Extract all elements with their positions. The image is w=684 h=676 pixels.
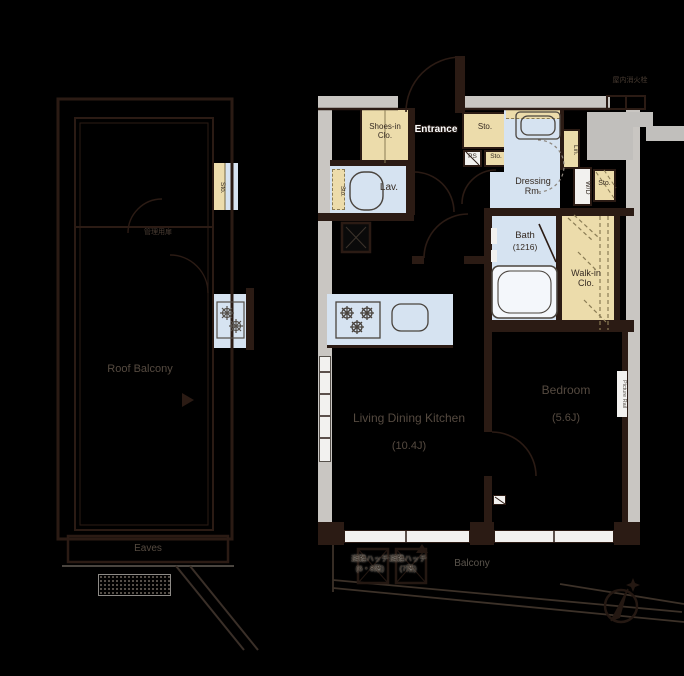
right-wall-inner bbox=[622, 332, 628, 528]
lav-label: Lav. bbox=[372, 182, 406, 194]
roof-balcony-label: Roof Balcony bbox=[100, 363, 180, 376]
wall-lav-right bbox=[406, 166, 412, 213]
hatch-triangle bbox=[416, 544, 428, 553]
left-door-arcs bbox=[128, 199, 208, 293]
dressing-label: Dressing Rm. bbox=[508, 176, 558, 197]
top-wall-right bbox=[462, 96, 610, 109]
balcony-label: Balcony bbox=[448, 558, 496, 570]
wd-label: W/D bbox=[574, 175, 591, 201]
hatch-a-name: 避難ハッチ bbox=[350, 555, 390, 564]
dressing-top-shelf bbox=[506, 110, 560, 119]
bottom-stub-right bbox=[614, 522, 640, 545]
lav-sto-label: Sto. bbox=[331, 177, 345, 205]
ldk-window bbox=[344, 530, 470, 543]
entrance-label: Entrance bbox=[408, 124, 464, 136]
ldk-label: Living Dining Kitchen bbox=[344, 412, 474, 426]
left-kitchen-wall bbox=[246, 288, 254, 350]
left-site-diagonals bbox=[176, 566, 258, 650]
room-dressing-ext bbox=[490, 172, 504, 208]
wall-lav-top bbox=[330, 160, 412, 166]
left-inner-door-arc bbox=[170, 255, 208, 293]
wall-main-vertical-lower bbox=[484, 476, 492, 545]
wall-hall-bottom-a bbox=[412, 256, 424, 264]
illegible-note-box bbox=[98, 574, 171, 596]
bedroom-label: Bedroom bbox=[516, 384, 616, 398]
sto-a-label: Sto. bbox=[462, 122, 508, 131]
shaft-block bbox=[587, 112, 633, 160]
corridor-step-b bbox=[646, 126, 684, 141]
ldk-size-label: (10.4J) bbox=[344, 440, 474, 453]
eaves-label: Eaves bbox=[108, 543, 188, 555]
service-door-arc bbox=[128, 199, 162, 233]
left-storage-blue bbox=[225, 163, 238, 210]
wall-bedroom-top bbox=[484, 320, 634, 332]
bedroom-window bbox=[494, 530, 614, 543]
bedroom-size-label: (5.6J) bbox=[516, 412, 616, 425]
service-door-label: 管理用扉 bbox=[134, 229, 182, 237]
ps-label: PS bbox=[463, 153, 482, 160]
hatch-b-floors: (7階) bbox=[388, 565, 428, 574]
left-storage-label: Sto. bbox=[211, 172, 226, 204]
compass-north-icon bbox=[605, 578, 640, 622]
bath-size-label: (1216) bbox=[504, 243, 546, 253]
hatch-b-name: 避難ハッチ bbox=[388, 555, 428, 564]
shoes-in-closet-label: Shoes-in Clo. bbox=[362, 122, 408, 140]
compass-star bbox=[626, 578, 640, 592]
bath-label: Bath bbox=[504, 231, 546, 242]
wall-lav-bottom bbox=[318, 213, 414, 221]
bedroom-door-arc bbox=[492, 432, 536, 476]
wall-walkin-right bbox=[614, 212, 620, 332]
hatch-a-floors: (6・8階) bbox=[350, 565, 390, 574]
direction-triangle bbox=[182, 393, 194, 407]
walk-in-closet-label: Walk-in Clo. bbox=[562, 268, 610, 289]
floor-plan: Sto. Roof Balcony Eaves 管理用扉 bbox=[0, 0, 684, 676]
left-building-outline bbox=[58, 99, 232, 539]
wall-sleeve-marker bbox=[493, 495, 506, 505]
sto-c-label: Sto. bbox=[593, 180, 616, 188]
left-kitchen-counter bbox=[212, 294, 246, 348]
hall-ldk-door-arc bbox=[424, 214, 468, 258]
roof-balcony-rail bbox=[75, 118, 213, 530]
lav-door-arc bbox=[414, 172, 454, 212]
ldk-side-window bbox=[319, 356, 331, 462]
lin-label: Lin. bbox=[562, 138, 579, 162]
floor-drain-box bbox=[342, 223, 370, 252]
kitchen-counter bbox=[327, 294, 453, 348]
corridor-step-a bbox=[633, 112, 653, 127]
entrance-door-arc bbox=[406, 57, 461, 112]
fire-hydrant-label: 屋内消火栓 bbox=[598, 77, 662, 85]
picture-rail-label: Picture Rail bbox=[617, 372, 627, 417]
entrance-door-leaf bbox=[455, 56, 465, 113]
bottom-stub-left bbox=[318, 522, 344, 545]
sto-b-label: Sto. bbox=[484, 153, 508, 160]
